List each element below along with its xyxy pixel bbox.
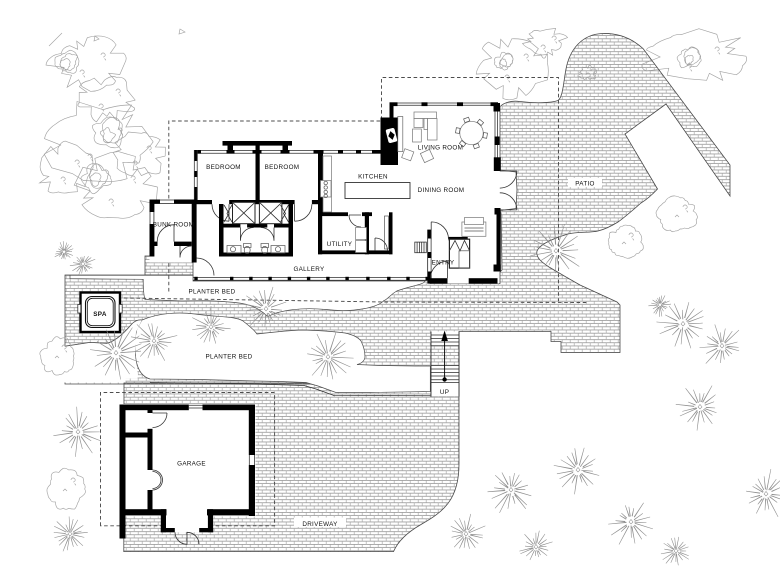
svg-text:DINING ROOM: DINING ROOM — [418, 187, 465, 194]
svg-text:UP: UP — [440, 389, 449, 396]
svg-text:KITCHEN: KITCHEN — [358, 174, 388, 181]
svg-text:BEDROOM: BEDROOM — [206, 164, 241, 171]
svg-text:DRIVEWAY: DRIVEWAY — [302, 521, 338, 528]
svg-text:PLANTER BED: PLANTER BED — [205, 354, 252, 361]
svg-text:PLANTER BED: PLANTER BED — [188, 289, 235, 296]
svg-text:ENTRY: ENTRY — [432, 260, 455, 267]
svg-text:LIVING ROOM: LIVING ROOM — [418, 145, 463, 152]
svg-text:UTILITY: UTILITY — [327, 241, 353, 248]
svg-text:GARAGE: GARAGE — [177, 461, 206, 468]
svg-text:GALLERY: GALLERY — [293, 266, 325, 273]
svg-text:BUNK ROOM: BUNK ROOM — [153, 222, 195, 229]
svg-text:SPA: SPA — [93, 311, 107, 318]
svg-text:BEDROOM: BEDROOM — [265, 164, 300, 171]
svg-text:PATIO: PATIO — [575, 181, 594, 188]
